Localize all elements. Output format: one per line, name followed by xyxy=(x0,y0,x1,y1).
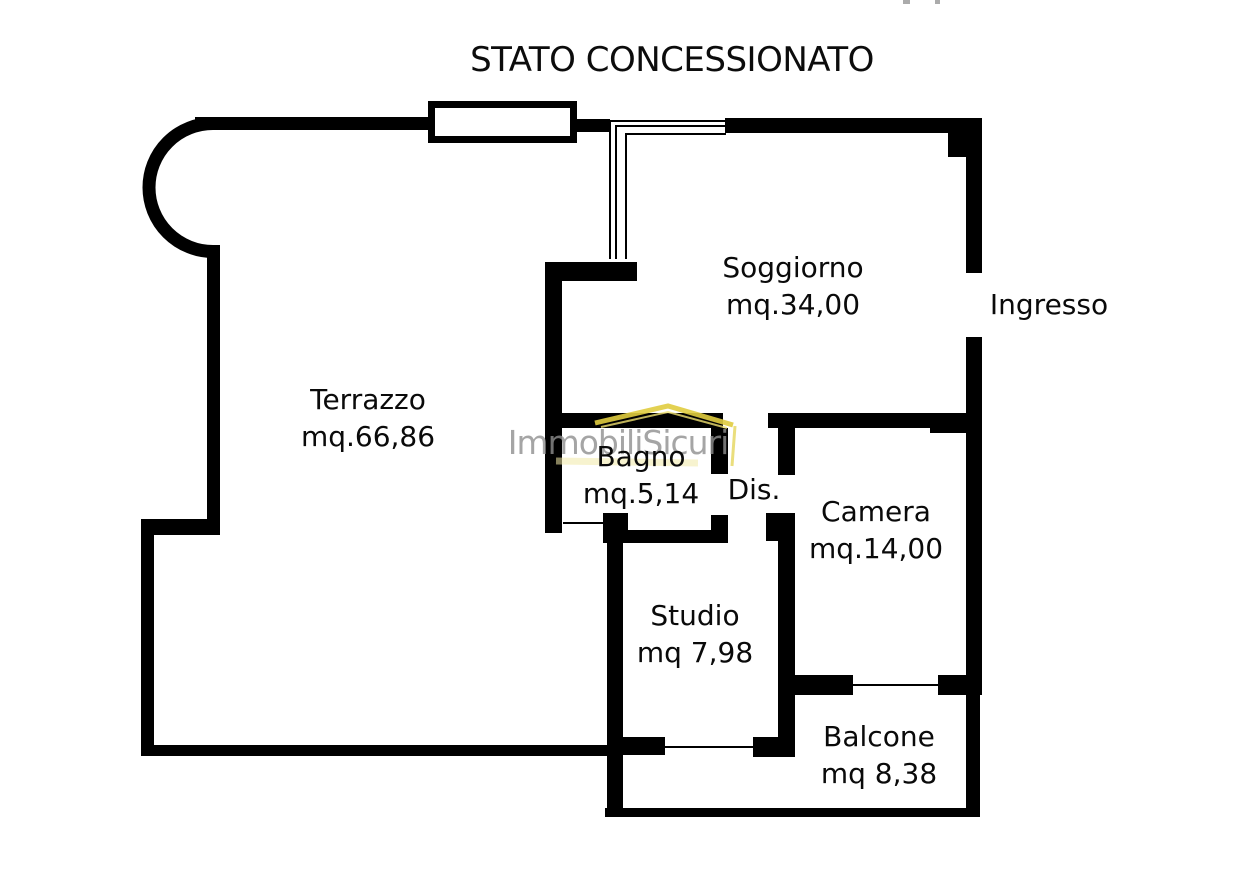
edge-artifact xyxy=(903,0,910,4)
plan-title: STATO CONCESSIONATO xyxy=(470,40,874,80)
room-name: Bagno xyxy=(583,438,699,475)
room-label-bagno: Bagno mq.5,14 xyxy=(583,438,699,512)
room-name: Dis. xyxy=(728,471,781,508)
room-label-dis: Dis. xyxy=(728,471,781,508)
room-name: Balcone xyxy=(821,718,937,755)
room-label-ingresso: Ingresso xyxy=(990,286,1108,323)
room-name: Ingresso xyxy=(990,286,1108,323)
room-area: mq 8,38 xyxy=(821,755,937,792)
edge-artifact xyxy=(935,0,940,4)
room-label-camera: Camera mq.14,00 xyxy=(809,493,943,567)
room-name: Soggiorno xyxy=(722,249,863,286)
floorplan-canvas: ImmobiliSicuri STATO CONCESSIONATO Terra… xyxy=(0,0,1260,879)
room-name: Studio xyxy=(637,597,753,634)
room-area: mq.14,00 xyxy=(809,530,943,567)
room-area: mq.34,00 xyxy=(722,286,863,323)
room-label-studio: Studio mq 7,98 xyxy=(637,597,753,671)
curved-wall xyxy=(149,124,213,252)
sliding-door-symbol xyxy=(610,121,726,259)
room-label-soggiorno: Soggiorno mq.34,00 xyxy=(722,249,863,323)
room-area: mq 7,98 xyxy=(637,634,753,671)
window-symbol xyxy=(428,101,577,143)
room-name: Camera xyxy=(809,493,943,530)
room-name: Terrazzo xyxy=(301,381,435,418)
room-area: mq.66,86 xyxy=(301,418,435,455)
room-label-balcone: Balcone mq 8,38 xyxy=(821,718,937,792)
room-area: mq.5,14 xyxy=(583,475,699,512)
room-label-terrazzo: Terrazzo mq.66,86 xyxy=(301,381,435,455)
